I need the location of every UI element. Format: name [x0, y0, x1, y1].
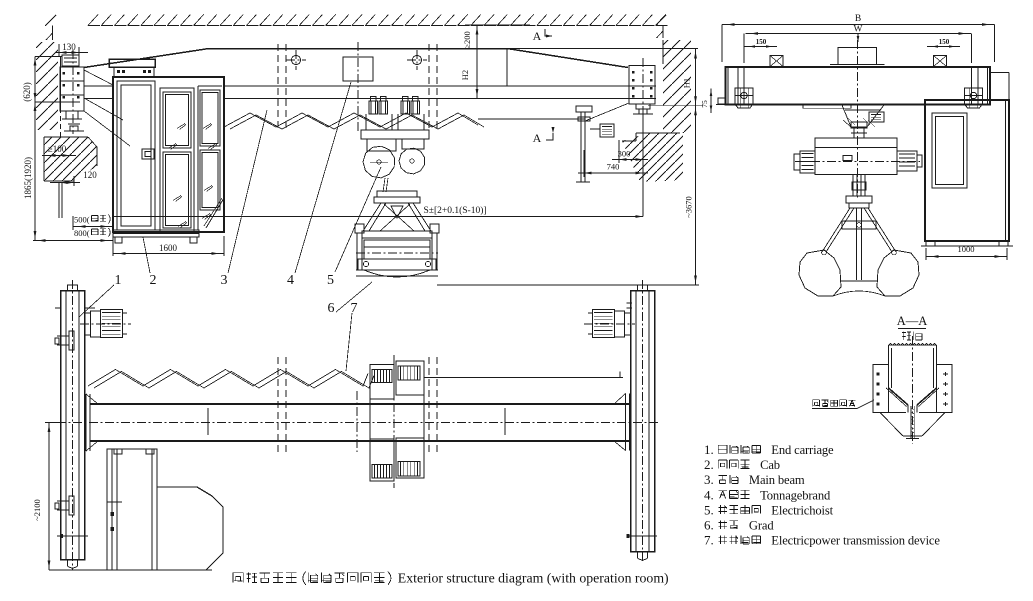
svg-text:1.: 1.: [704, 442, 714, 457]
svg-text:130: 130: [62, 42, 76, 52]
svg-text:75: 75: [700, 100, 709, 108]
svg-text:150: 150: [939, 38, 950, 46]
svg-text:A: A: [533, 29, 542, 43]
svg-text:800(: 800(: [74, 228, 90, 238]
svg-text:3: 3: [221, 273, 228, 288]
svg-text:5.: 5.: [704, 502, 714, 517]
svg-text:Electrichoist: Electrichoist: [771, 503, 833, 517]
svg-text:A: A: [533, 131, 542, 145]
svg-text:150: 150: [756, 38, 767, 46]
svg-text:5: 5: [327, 273, 334, 288]
svg-text:1600: 1600: [159, 243, 178, 253]
svg-text:Cab: Cab: [760, 458, 780, 472]
svg-text:Electricpower transmission dev: Electricpower transmission device: [771, 534, 940, 548]
svg-text:1000: 1000: [958, 244, 975, 254]
svg-text:7.: 7.: [704, 533, 714, 548]
svg-text:500(: 500(: [74, 215, 90, 225]
svg-text:(620): (620): [22, 82, 32, 102]
svg-text:End carriage: End carriage: [771, 443, 834, 457]
svg-text:2.: 2.: [704, 457, 714, 472]
svg-text:Grad: Grad: [749, 519, 774, 533]
svg-text:Main beam: Main beam: [749, 473, 805, 487]
svg-text:≥200: ≥200: [462, 31, 472, 48]
svg-text:S±[2+0.1(S-10)]: S±[2+0.1(S-10)]: [423, 205, 486, 216]
svg-text:Exterior structure diagram (wi: Exterior structure diagram (with operati…: [398, 571, 669, 587]
svg-text:3.: 3.: [704, 472, 714, 487]
svg-text:6.: 6.: [704, 518, 714, 533]
svg-text:120: 120: [83, 170, 97, 180]
svg-text:~3670: ~3670: [684, 196, 694, 218]
svg-text:4.: 4.: [704, 487, 714, 502]
svg-text:≥100: ≥100: [48, 144, 67, 154]
svg-text:740: 740: [607, 162, 620, 172]
svg-text:1865(1920): 1865(1920): [23, 157, 33, 199]
svg-text:H1: H1: [682, 78, 692, 88]
svg-text:A—A: A—A: [897, 314, 928, 328]
svg-text:B: B: [855, 14, 861, 24]
svg-text:W: W: [854, 25, 863, 35]
svg-text:Tonnagebrand: Tonnagebrand: [760, 488, 831, 502]
svg-text:~2100: ~2100: [32, 499, 42, 521]
svg-text:2: 2: [150, 273, 157, 288]
svg-text:4: 4: [287, 273, 294, 288]
svg-text:6: 6: [328, 301, 335, 316]
svg-text:H2: H2: [460, 70, 470, 80]
svg-text:300: 300: [618, 149, 631, 159]
svg-text:1: 1: [115, 273, 122, 288]
